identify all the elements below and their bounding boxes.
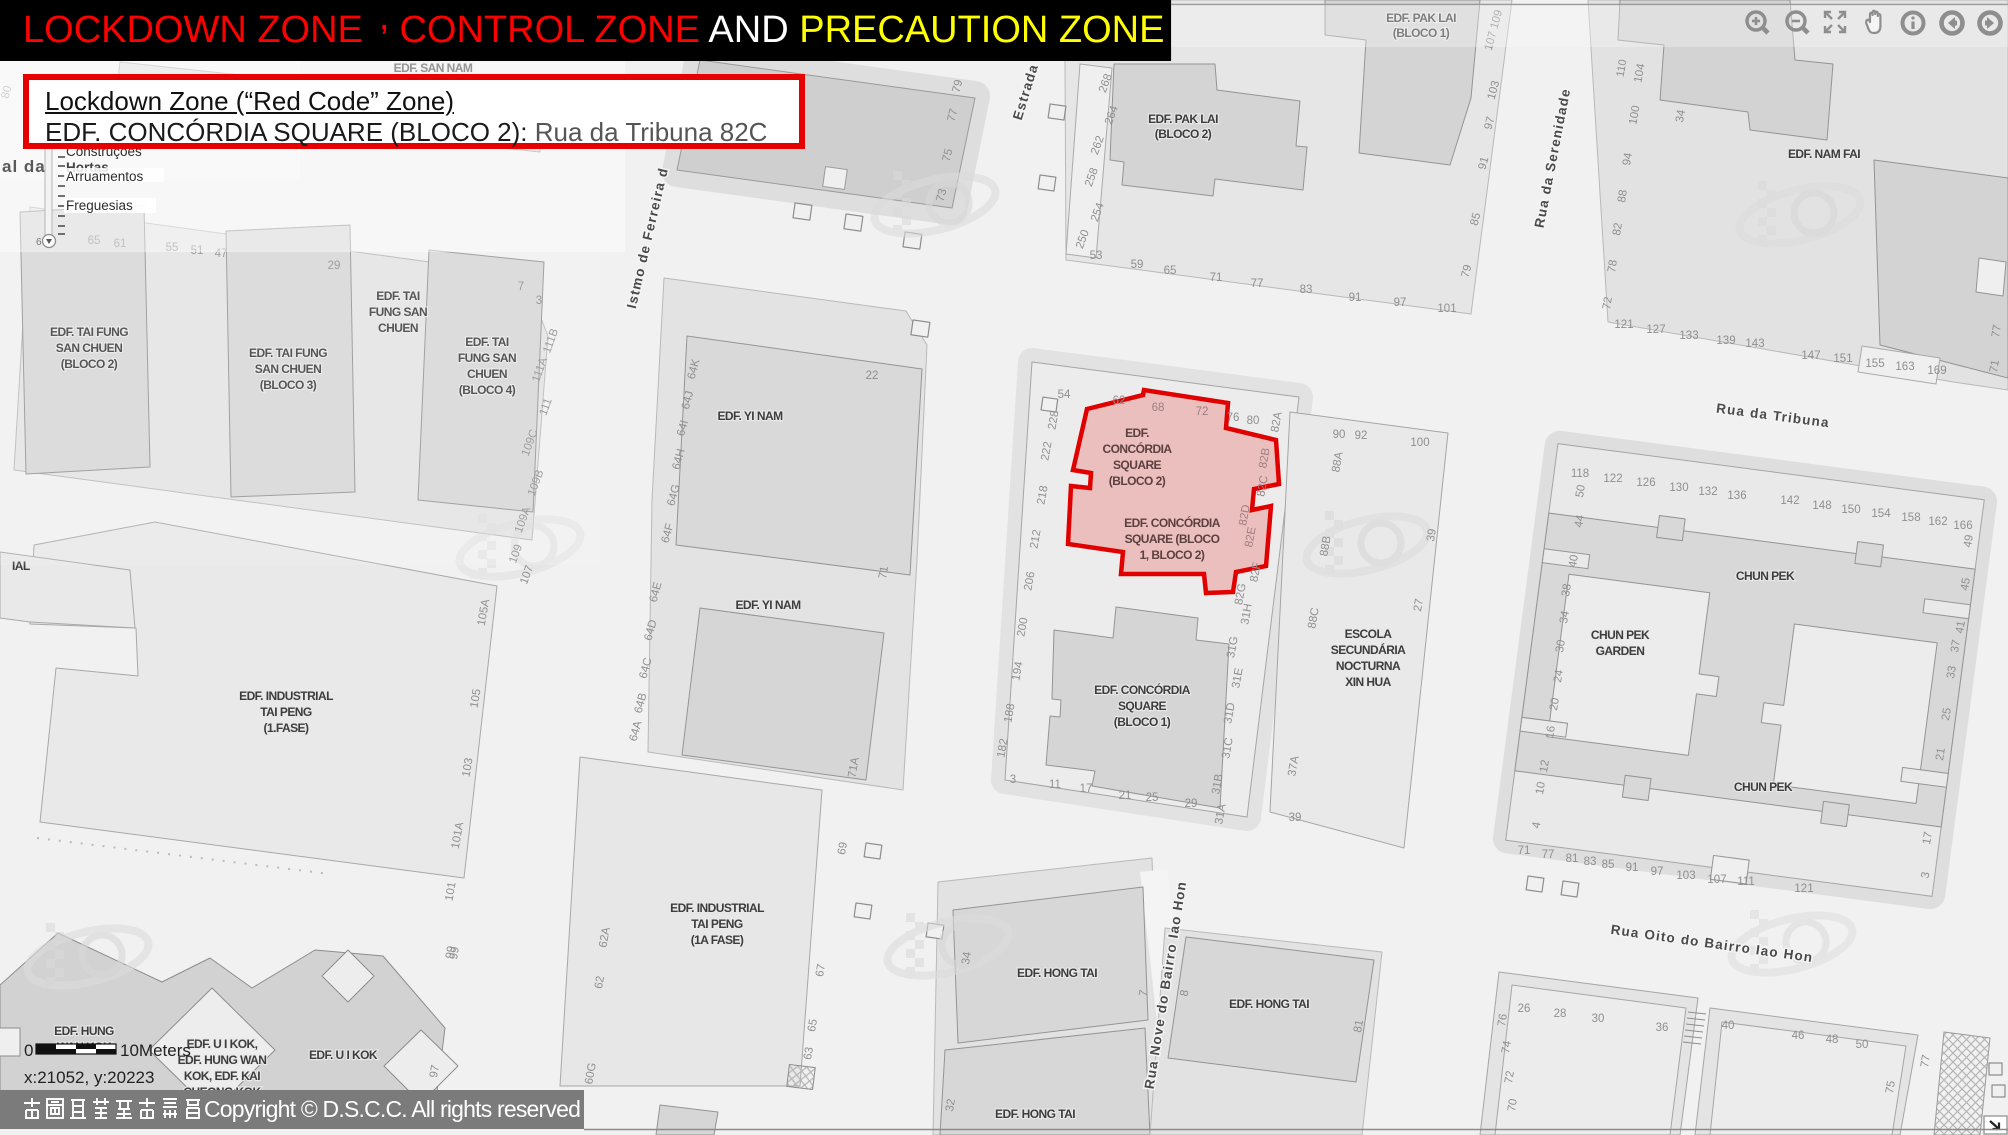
svg-text:11: 11 [1049, 779, 1061, 791]
svg-text:CHUN PEK: CHUN PEK [1591, 628, 1650, 642]
svg-text:GARDEN: GARDEN [1596, 644, 1645, 658]
svg-text:142: 142 [1780, 495, 1799, 507]
svg-text:10Meters: 10Meters [120, 1041, 191, 1060]
svg-text:(BLOCO 2): (BLOCO 2) [1109, 474, 1166, 488]
svg-text:148: 148 [1812, 500, 1831, 512]
svg-text:97: 97 [428, 1064, 442, 1079]
svg-text:72: 72 [1503, 1070, 1517, 1085]
svg-text:28: 28 [1554, 1008, 1567, 1020]
svg-text:83: 83 [1300, 284, 1313, 296]
svg-text:(BLOCO 2): (BLOCO 2) [1155, 127, 1212, 141]
svg-text:SQUARE (BLOCO: SQUARE (BLOCO [1125, 532, 1220, 546]
svg-text:118: 118 [1571, 468, 1589, 480]
svg-text:169: 169 [1927, 365, 1946, 377]
svg-text:81: 81 [1352, 1019, 1366, 1034]
svg-text:121: 121 [1794, 883, 1813, 895]
svg-text:0: 0 [24, 1041, 33, 1060]
svg-text:38: 38 [1560, 583, 1574, 598]
svg-text:122: 122 [1603, 473, 1622, 485]
svg-text:132: 132 [1698, 486, 1717, 498]
svg-text:41: 41 [1954, 620, 1968, 635]
svg-text:65: 65 [806, 1018, 820, 1033]
svg-text:EDF. HUNG WAN: EDF. HUNG WAN [178, 1053, 267, 1067]
svg-text:x:21052, y:20223: x:21052, y:20223 [24, 1068, 154, 1087]
svg-text:75: 75 [1884, 1080, 1898, 1095]
svg-text:77: 77 [1542, 849, 1555, 861]
svg-text:3: 3 [1010, 774, 1016, 786]
svg-text:22: 22 [866, 370, 879, 382]
svg-text:EDF. HONG TAI: EDF. HONG TAI [1229, 997, 1309, 1011]
svg-text:63: 63 [802, 1046, 816, 1061]
svg-text:NOCTURNA: NOCTURNA [1336, 659, 1401, 673]
svg-text:21: 21 [1934, 747, 1948, 762]
svg-text:71: 71 [1518, 845, 1531, 857]
svg-text:88: 88 [1616, 189, 1630, 204]
svg-text:39: 39 [1289, 812, 1302, 824]
svg-text:30: 30 [1592, 1013, 1605, 1025]
svg-text:CONCÓRDIA: CONCÓRDIA [1102, 441, 1172, 456]
svg-text:EDF. U I KOK: EDF. U I KOK [309, 1048, 378, 1062]
svg-text:72: 72 [1196, 406, 1209, 418]
svg-text:EDF. CONCÓRDIA: EDF. CONCÓRDIA [1094, 682, 1191, 697]
svg-text:127: 127 [1646, 324, 1665, 336]
svg-text:71: 71 [877, 565, 891, 580]
svg-text:21: 21 [1119, 790, 1132, 802]
svg-text:EDF. YI NAM: EDF. YI NAM [717, 409, 783, 423]
svg-text:(1A FASE): (1A FASE) [691, 933, 744, 947]
svg-text:36: 36 [1656, 1022, 1669, 1034]
svg-text:30: 30 [1554, 639, 1568, 654]
svg-text:78: 78 [1606, 259, 1620, 274]
svg-text:46: 46 [1792, 1030, 1805, 1042]
svg-text:SQUARE: SQUARE [1113, 458, 1162, 472]
svg-text:80: 80 [1247, 415, 1260, 427]
svg-text:EDF. INDUSTRIAL: EDF. INDUSTRIAL [239, 689, 333, 703]
svg-text:143: 143 [1745, 338, 1764, 350]
svg-text:163: 163 [1895, 361, 1914, 373]
svg-text:17: 17 [1921, 831, 1935, 846]
svg-text:83: 83 [1584, 856, 1597, 868]
svg-text:67: 67 [814, 963, 828, 978]
svg-text:29: 29 [1185, 798, 1198, 810]
svg-text:40: 40 [1722, 1020, 1735, 1032]
svg-text:EDF. HUNG: EDF. HUNG [54, 1024, 114, 1038]
svg-text:CHUN PEK: CHUN PEK [1734, 780, 1793, 794]
svg-text:Freguesias: Freguesias [66, 198, 133, 213]
svg-text:48: 48 [1826, 1034, 1839, 1046]
svg-text:97: 97 [1651, 866, 1664, 878]
svg-text:Arruamentos: Arruamentos [66, 169, 144, 184]
svg-text:al da: al da [2, 157, 46, 176]
svg-text:99: 99 [448, 946, 462, 961]
svg-text:TAI PENG: TAI PENG [691, 917, 743, 931]
svg-text:25: 25 [1940, 707, 1954, 722]
svg-text:EDF. HONG TAI: EDF. HONG TAI [995, 1107, 1075, 1121]
svg-text:90: 90 [1333, 429, 1346, 441]
svg-text:EDF.: EDF. [1125, 426, 1149, 440]
svg-text:50: 50 [1574, 484, 1588, 499]
svg-text:107: 107 [1707, 874, 1726, 886]
svg-text:27: 27 [1412, 598, 1426, 613]
svg-text:151: 151 [1833, 353, 1852, 365]
svg-text:54: 54 [1058, 389, 1071, 401]
svg-text:EDF. CONCÓRDIA: EDF. CONCÓRDIA [1124, 515, 1221, 530]
svg-text:49: 49 [1962, 534, 1976, 549]
svg-text:EDF. PAK LAI: EDF. PAK LAI [1148, 112, 1218, 126]
svg-text:62: 62 [593, 975, 607, 990]
svg-text:45: 45 [1959, 577, 1973, 592]
svg-text:97: 97 [1394, 297, 1407, 309]
svg-text:XIN HUA: XIN HUA [1345, 675, 1391, 689]
svg-text:EDF. YI NAM: EDF. YI NAM [735, 598, 801, 612]
svg-text:68: 68 [1152, 402, 1165, 414]
svg-text:82: 82 [1611, 222, 1625, 237]
svg-text:76: 76 [1227, 412, 1240, 424]
svg-text:CHUN PEK: CHUN PEK [1736, 569, 1795, 583]
svg-text:16: 16 [1544, 725, 1558, 740]
svg-text:6: 6 [36, 237, 42, 248]
svg-text:33: 33 [1945, 665, 1959, 680]
svg-text:150: 150 [1841, 504, 1860, 516]
svg-text:71: 71 [1210, 272, 1223, 284]
svg-text:155: 155 [1865, 358, 1884, 370]
svg-text:1, BLOCO 2): 1, BLOCO 2) [1140, 548, 1205, 562]
svg-text:121: 121 [1614, 319, 1633, 331]
svg-text:130: 130 [1669, 482, 1688, 494]
svg-text:136: 136 [1727, 490, 1746, 502]
svg-text:70: 70 [1506, 1098, 1520, 1113]
svg-text:KOK, EDF. KAI: KOK, EDF. KAI [184, 1069, 260, 1083]
svg-text:81: 81 [1566, 853, 1579, 865]
svg-text:103: 103 [1676, 870, 1695, 882]
svg-text:53: 53 [1090, 250, 1103, 262]
svg-text:40: 40 [1567, 554, 1581, 569]
svg-text:(1.FASE): (1.FASE) [264, 721, 309, 735]
svg-text:EDF. U I KOK,: EDF. U I KOK, [187, 1037, 258, 1051]
svg-text:17: 17 [1080, 783, 1093, 795]
svg-text:92: 92 [1355, 430, 1368, 442]
svg-text:91: 91 [1349, 292, 1362, 304]
svg-text:12: 12 [1538, 759, 1552, 774]
svg-text:77: 77 [1990, 324, 2004, 339]
svg-text:71: 71 [1988, 359, 2002, 374]
svg-text:39: 39 [1425, 528, 1439, 543]
svg-text:154: 154 [1871, 508, 1891, 520]
svg-text:ESCOLA: ESCOLA [1345, 627, 1393, 641]
svg-text:166: 166 [1953, 520, 1972, 532]
svg-text:TAI PENG: TAI PENG [260, 705, 312, 719]
svg-text:(BLOCO 1): (BLOCO 1) [1114, 715, 1171, 729]
svg-text:50: 50 [1856, 1039, 1869, 1051]
svg-text:26: 26 [1518, 1003, 1531, 1015]
svg-text:133: 133 [1679, 330, 1698, 342]
svg-text:101: 101 [1437, 303, 1456, 315]
svg-text:77: 77 [1251, 278, 1264, 290]
svg-text:126: 126 [1636, 477, 1655, 489]
svg-text:25: 25 [1146, 792, 1159, 804]
svg-text:EDF. HONG TAI: EDF. HONG TAI [1017, 966, 1097, 980]
svg-text:158: 158 [1901, 512, 1920, 524]
svg-text:69: 69 [836, 841, 850, 856]
svg-text:EDF. NAM FAI: EDF. NAM FAI [1788, 147, 1860, 161]
svg-text:65: 65 [1164, 265, 1177, 277]
svg-text:77: 77 [1919, 1054, 1933, 1069]
svg-text:162: 162 [1928, 516, 1947, 528]
svg-text:37: 37 [1949, 639, 1963, 654]
svg-text:85: 85 [1602, 859, 1615, 871]
svg-text:SECUNDÁRIA: SECUNDÁRIA [1331, 642, 1406, 657]
svg-text:100: 100 [1410, 437, 1429, 449]
svg-text:91: 91 [1626, 862, 1639, 874]
svg-text:10: 10 [1534, 781, 1548, 796]
svg-text:147: 147 [1801, 350, 1820, 362]
svg-text:20: 20 [1548, 697, 1562, 712]
svg-text:EDF. INDUSTRIAL: EDF. INDUSTRIAL [670, 901, 764, 915]
svg-text:72: 72 [1601, 296, 1615, 311]
svg-text:62: 62 [1113, 395, 1126, 407]
svg-text:59: 59 [1131, 259, 1144, 271]
svg-text:SQUARE: SQUARE [1118, 699, 1167, 713]
svg-text:76: 76 [1496, 1013, 1510, 1028]
svg-text:32: 32 [944, 1098, 958, 1113]
svg-text:139: 139 [1716, 335, 1735, 347]
svg-text:111: 111 [1737, 876, 1754, 888]
